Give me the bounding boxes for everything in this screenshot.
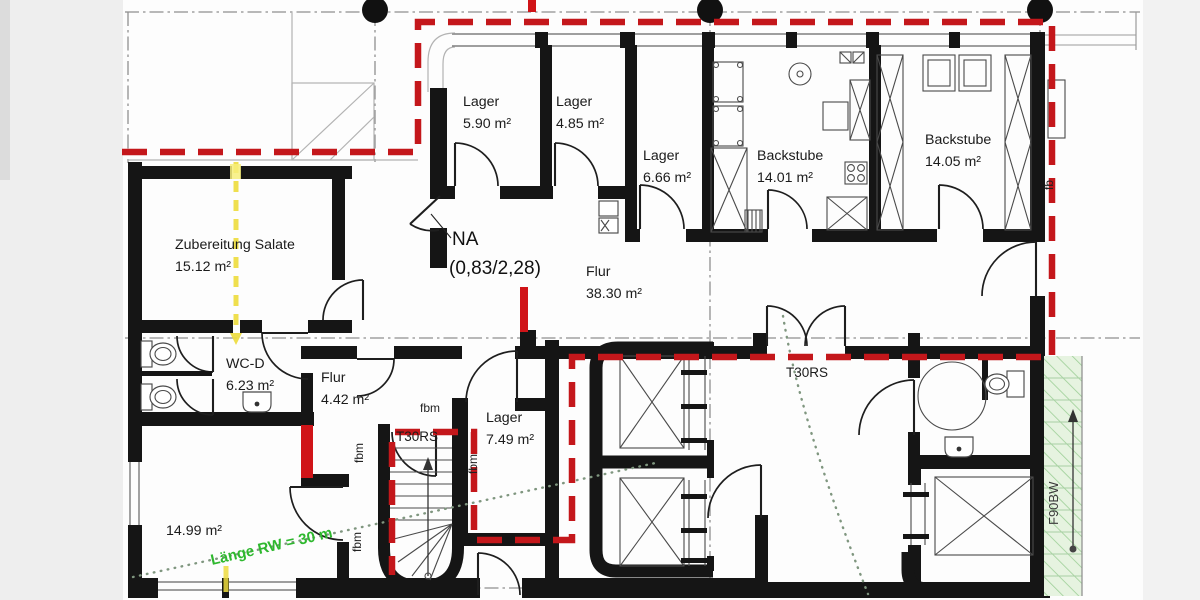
grid-axis-dot xyxy=(362,0,388,23)
bakery-equipment xyxy=(711,52,870,232)
elevator-shaft xyxy=(903,477,1033,555)
fbm-label: fbm xyxy=(350,532,364,552)
room-label-zubereitung-name: Zubereitung Salate xyxy=(175,237,295,253)
fire-door-label-t30rs: T30RS xyxy=(396,429,438,444)
room-label-flur-442-area: 4.42 m² xyxy=(321,392,369,408)
f90bw-label: F90BW xyxy=(1046,481,1061,525)
accessible-wc xyxy=(918,362,1024,457)
room-label-lager-590-name: Lager xyxy=(463,94,500,110)
room-label-flur-442-name: Flur xyxy=(321,370,346,386)
fbm-label: fbm xyxy=(352,443,366,463)
na-label: NA xyxy=(452,229,479,250)
room-label-flur-3830-name: Flur xyxy=(586,264,611,280)
floor-plan: Lager 5.90 m² Lager 4.85 m² Lager 6.66 m… xyxy=(0,0,1200,600)
page-margin-right xyxy=(1143,0,1200,600)
room-label-wcd-name: WC-D xyxy=(226,356,265,372)
room-label-lager-749-name: Lager xyxy=(486,410,523,426)
site-outline xyxy=(128,12,418,160)
room-label-backstube-1405-name: Backstube xyxy=(925,132,991,148)
fire-wall-mark xyxy=(301,425,313,478)
sink-unit xyxy=(599,201,618,233)
fire-door-label-t30rs: T30RS xyxy=(786,365,828,380)
room-label-lager-590-area: 5.90 m² xyxy=(463,116,511,132)
floorplan-canvas: Lager 5.90 m² Lager 4.85 m² Lager 6.66 m… xyxy=(0,0,1200,600)
room-label-1499-area: 14.99 m² xyxy=(166,523,222,539)
f90-wall-strip xyxy=(1044,356,1082,596)
fbm-label: fbm xyxy=(420,401,440,415)
room-label-lager-666-name: Lager xyxy=(643,148,680,164)
page-margin-left xyxy=(0,0,123,600)
room-label-lager-485-name: Lager xyxy=(556,94,593,110)
na-dimension: (0,83/2,28) xyxy=(449,258,541,279)
room-label-wcd-area: 6.23 m² xyxy=(226,378,274,394)
fire-wall-mark xyxy=(528,0,536,12)
stair-direction-arrow xyxy=(423,457,433,470)
room-label-lager-666-area: 6.66 m² xyxy=(643,170,691,186)
fbm-label: fbm xyxy=(466,454,480,474)
fb-label: fb xyxy=(1042,180,1056,190)
room-label-lager-749-area: 7.49 m² xyxy=(486,432,534,448)
fire-wall-mark xyxy=(520,287,528,332)
room-label-backstube-1401-area: 14.01 m² xyxy=(757,170,813,186)
room-label-backstube-1401-name: Backstube xyxy=(757,148,823,164)
staircase xyxy=(390,448,452,580)
yellow-markings xyxy=(226,162,242,592)
wc-fixtures xyxy=(140,341,271,412)
room-label-lager-485-area: 4.85 m² xyxy=(556,116,604,132)
escape-route-length-note: Länge RW = 30 m xyxy=(209,524,334,569)
room-label-backstube-1405-area: 14.05 m² xyxy=(925,154,981,170)
room-label-zubereitung-area: 15.12 m² xyxy=(175,259,231,275)
room-label-flur-3830-area: 38.30 m² xyxy=(586,286,642,302)
